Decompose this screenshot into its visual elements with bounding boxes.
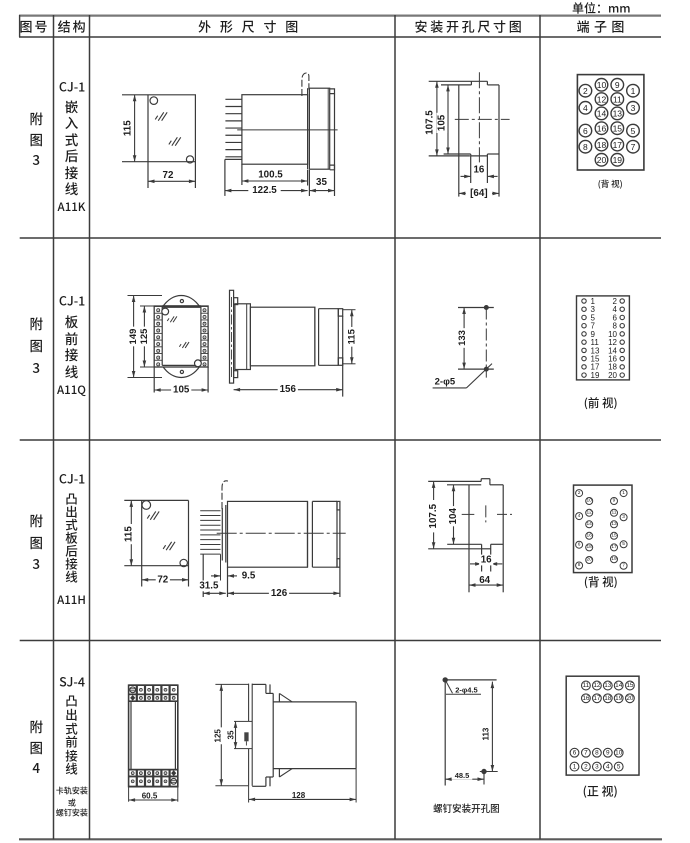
svg-text:1: 1	[631, 86, 636, 96]
svg-text:115: 115	[123, 120, 134, 136]
svg-text:18: 18	[597, 140, 607, 150]
svg-text:20: 20	[587, 557, 593, 563]
svg-text:7: 7	[584, 749, 588, 756]
svg-text:104: 104	[448, 507, 459, 524]
svg-text:122.5: 122.5	[252, 185, 277, 196]
svg-text:1: 1	[573, 763, 577, 770]
svg-text:105: 105	[437, 114, 448, 131]
svg-text:125: 125	[139, 328, 150, 345]
svg-text:17: 17	[593, 695, 601, 702]
svg-text:16: 16	[587, 533, 593, 539]
svg-text:9: 9	[606, 749, 610, 756]
svg-text:19: 19	[611, 556, 617, 562]
svg-text:9.5: 9.5	[242, 571, 256, 582]
svg-text:2-φ4.5: 2-φ4.5	[455, 685, 477, 694]
svg-text:115: 115	[123, 526, 134, 542]
svg-text:16: 16	[597, 124, 607, 134]
svg-text:149: 149	[128, 329, 139, 345]
svg-text:9: 9	[615, 80, 620, 90]
svg-text:15: 15	[611, 533, 617, 539]
svg-text:15: 15	[613, 124, 623, 134]
svg-text:16: 16	[481, 555, 492, 566]
svg-text:113: 113	[482, 727, 491, 740]
svg-text:8: 8	[583, 142, 588, 152]
svg-text:12: 12	[597, 94, 607, 104]
svg-text:9: 9	[613, 498, 616, 504]
svg-text:18: 18	[604, 695, 612, 702]
svg-text:11: 11	[583, 682, 590, 689]
svg-text:107.5: 107.5	[428, 503, 439, 528]
svg-text:72: 72	[157, 574, 168, 585]
svg-text:19: 19	[615, 695, 623, 702]
svg-text:17: 17	[611, 544, 617, 550]
svg-text:19: 19	[613, 155, 623, 165]
svg-text:13: 13	[604, 682, 612, 689]
svg-text:48.5: 48.5	[455, 771, 470, 780]
svg-text:8: 8	[595, 749, 599, 756]
svg-text:10: 10	[587, 498, 593, 504]
svg-text:7: 7	[622, 563, 625, 569]
svg-text:64: 64	[479, 575, 490, 586]
svg-text:4: 4	[606, 763, 610, 770]
svg-text:15: 15	[626, 682, 634, 689]
svg-text:2: 2	[584, 763, 588, 770]
svg-text:100.5: 100.5	[258, 169, 283, 180]
svg-text:60.5: 60.5	[142, 792, 158, 801]
svg-text:133: 133	[457, 330, 468, 346]
svg-text:4: 4	[583, 103, 588, 113]
svg-text:6: 6	[578, 541, 581, 547]
svg-text:10: 10	[615, 749, 623, 756]
svg-text:35: 35	[227, 730, 236, 739]
svg-text:126: 126	[271, 588, 288, 599]
svg-text:105: 105	[173, 385, 190, 396]
svg-text:[64]: [64]	[470, 188, 487, 199]
svg-text:5: 5	[631, 126, 636, 136]
svg-text:14: 14	[597, 109, 607, 119]
svg-text:13: 13	[613, 109, 623, 119]
svg-text:17: 17	[613, 140, 623, 150]
svg-text:8: 8	[578, 562, 581, 568]
svg-text:10: 10	[597, 80, 607, 90]
svg-text:2: 2	[583, 86, 588, 96]
svg-text:19: 19	[591, 371, 600, 380]
svg-text:3: 3	[631, 103, 636, 113]
svg-text:1: 1	[622, 490, 625, 496]
svg-text:2-φ5: 2-φ5	[435, 376, 456, 387]
svg-text:18: 18	[587, 544, 593, 550]
svg-text:3: 3	[622, 514, 625, 520]
svg-text:16: 16	[473, 165, 484, 176]
svg-text:4: 4	[578, 513, 581, 519]
svg-text:7: 7	[631, 142, 636, 152]
svg-text:14: 14	[615, 682, 623, 689]
svg-text:115: 115	[346, 328, 357, 344]
svg-text:35: 35	[316, 177, 327, 188]
svg-text:5: 5	[622, 541, 625, 547]
svg-text:2: 2	[578, 490, 581, 496]
svg-text:11: 11	[612, 510, 617, 516]
svg-text:14: 14	[587, 521, 593, 527]
svg-text:6: 6	[583, 126, 588, 136]
svg-text:107.5: 107.5	[425, 110, 436, 135]
svg-text:13: 13	[611, 521, 617, 527]
svg-text:20: 20	[608, 371, 617, 380]
svg-text:31.5: 31.5	[199, 580, 219, 591]
svg-text:16: 16	[582, 695, 590, 702]
svg-text:6: 6	[573, 749, 577, 756]
svg-text:20: 20	[597, 155, 607, 165]
svg-text:128: 128	[292, 791, 306, 800]
svg-text:5: 5	[617, 763, 621, 770]
svg-text:125: 125	[213, 729, 222, 743]
svg-text:12: 12	[593, 682, 601, 689]
svg-text:11: 11	[613, 94, 622, 104]
svg-text:72: 72	[163, 170, 174, 181]
svg-text:3: 3	[595, 763, 599, 770]
svg-text:156: 156	[280, 384, 297, 395]
svg-text:20: 20	[626, 695, 634, 702]
svg-text:12: 12	[587, 510, 593, 516]
